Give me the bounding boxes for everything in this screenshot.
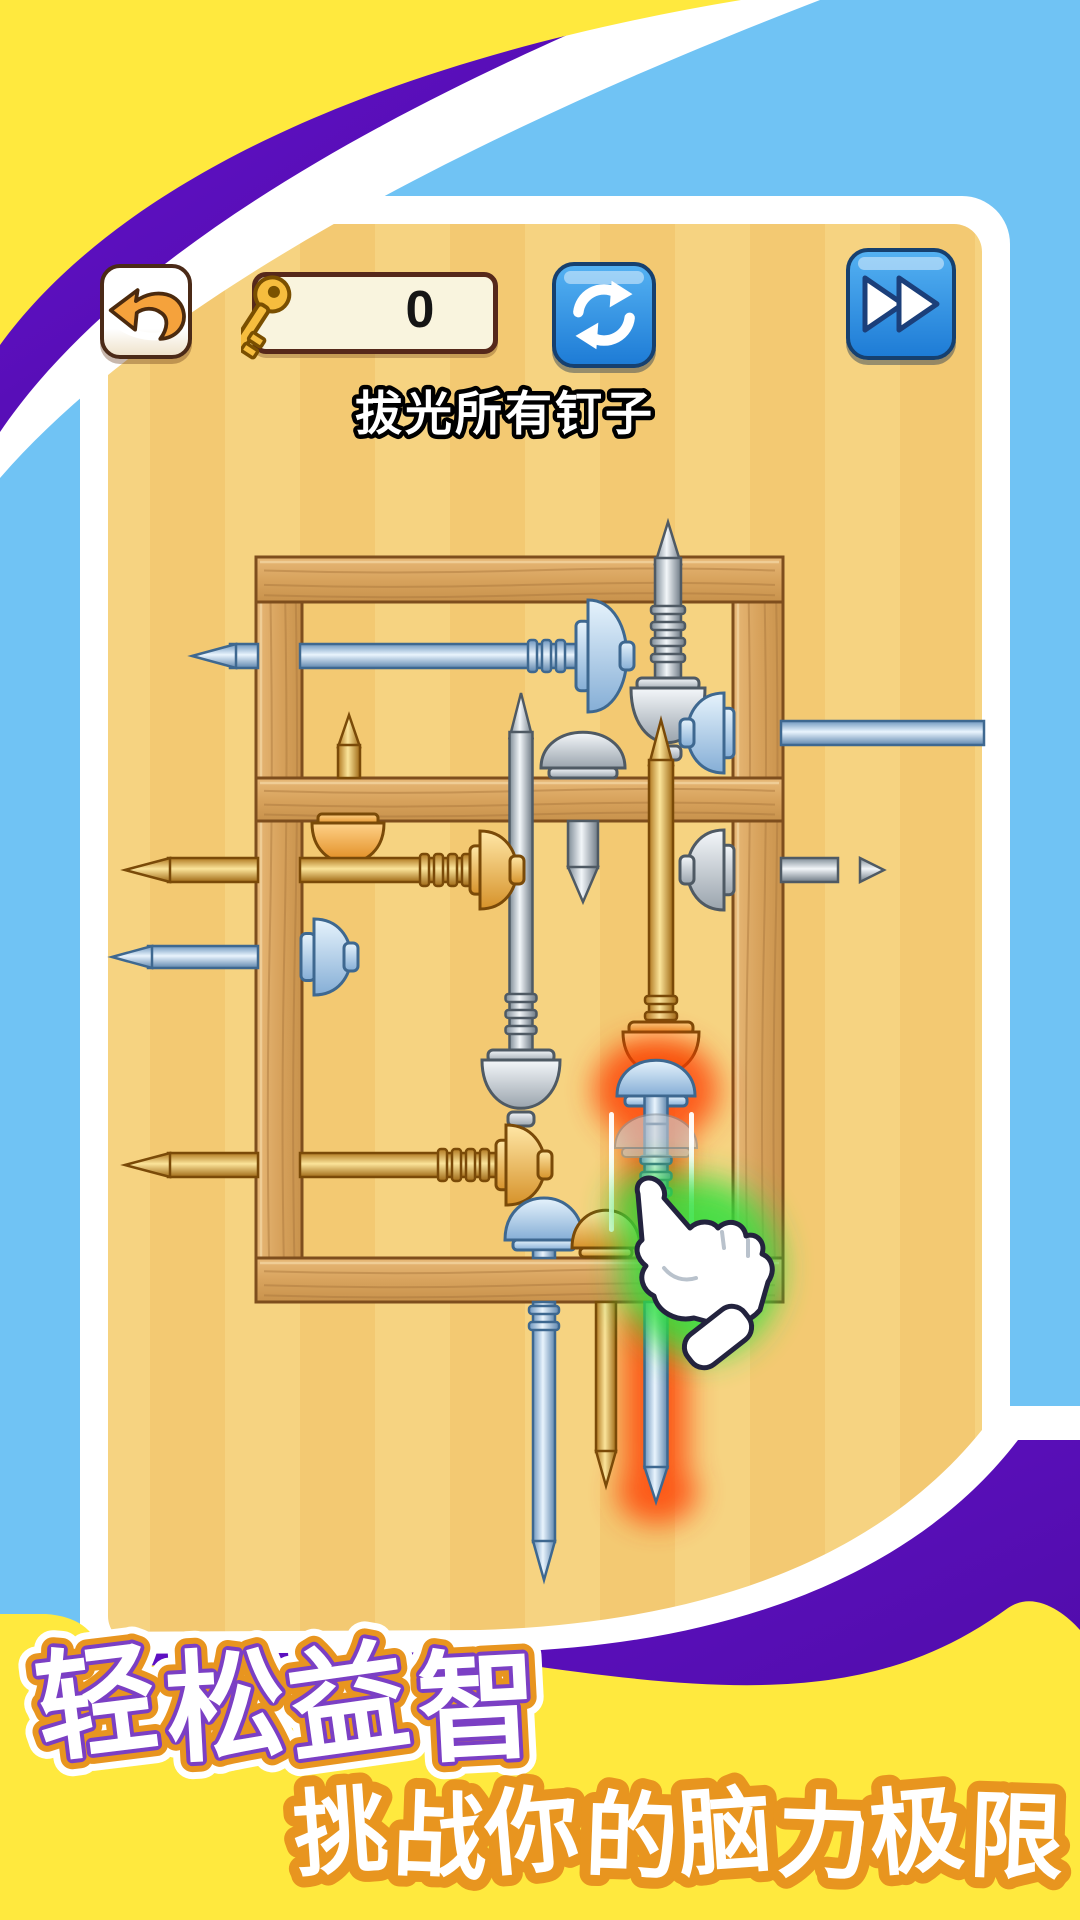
left-beam bbox=[256, 557, 302, 1302]
key-counter[interactable]: 0 bbox=[252, 272, 498, 354]
banner-title: 轻松益智 轻松益智 轻松益智 bbox=[29, 1628, 547, 1778]
button-shine bbox=[858, 257, 944, 270]
top-beam bbox=[256, 557, 783, 602]
back-button[interactable] bbox=[100, 264, 192, 359]
fast-forward-button[interactable] bbox=[846, 248, 956, 360]
key-count-value: 0 bbox=[365, 279, 475, 341]
screen: 拔光所有钉子 轻松益智 轻松益智 轻松益智 挑战你的脑力极限 bbox=[0, 0, 1080, 1920]
right-beam bbox=[733, 557, 783, 1302]
banner-line2-outline: 挑战你的脑力极限 bbox=[290, 1775, 1067, 1891]
button-shine bbox=[564, 271, 644, 284]
banner-subtitle: 挑战你的脑力极限 bbox=[290, 1775, 1067, 1891]
key-icon bbox=[241, 263, 361, 383]
fast-forward-icon bbox=[858, 268, 944, 340]
refresh-button[interactable] bbox=[552, 262, 656, 368]
back-arrow-icon bbox=[104, 270, 188, 354]
objective-text: 拔光所有钉子 bbox=[355, 387, 655, 440]
banner-line1: 轻松益智 bbox=[29, 1628, 547, 1778]
refresh-icon bbox=[566, 277, 642, 353]
